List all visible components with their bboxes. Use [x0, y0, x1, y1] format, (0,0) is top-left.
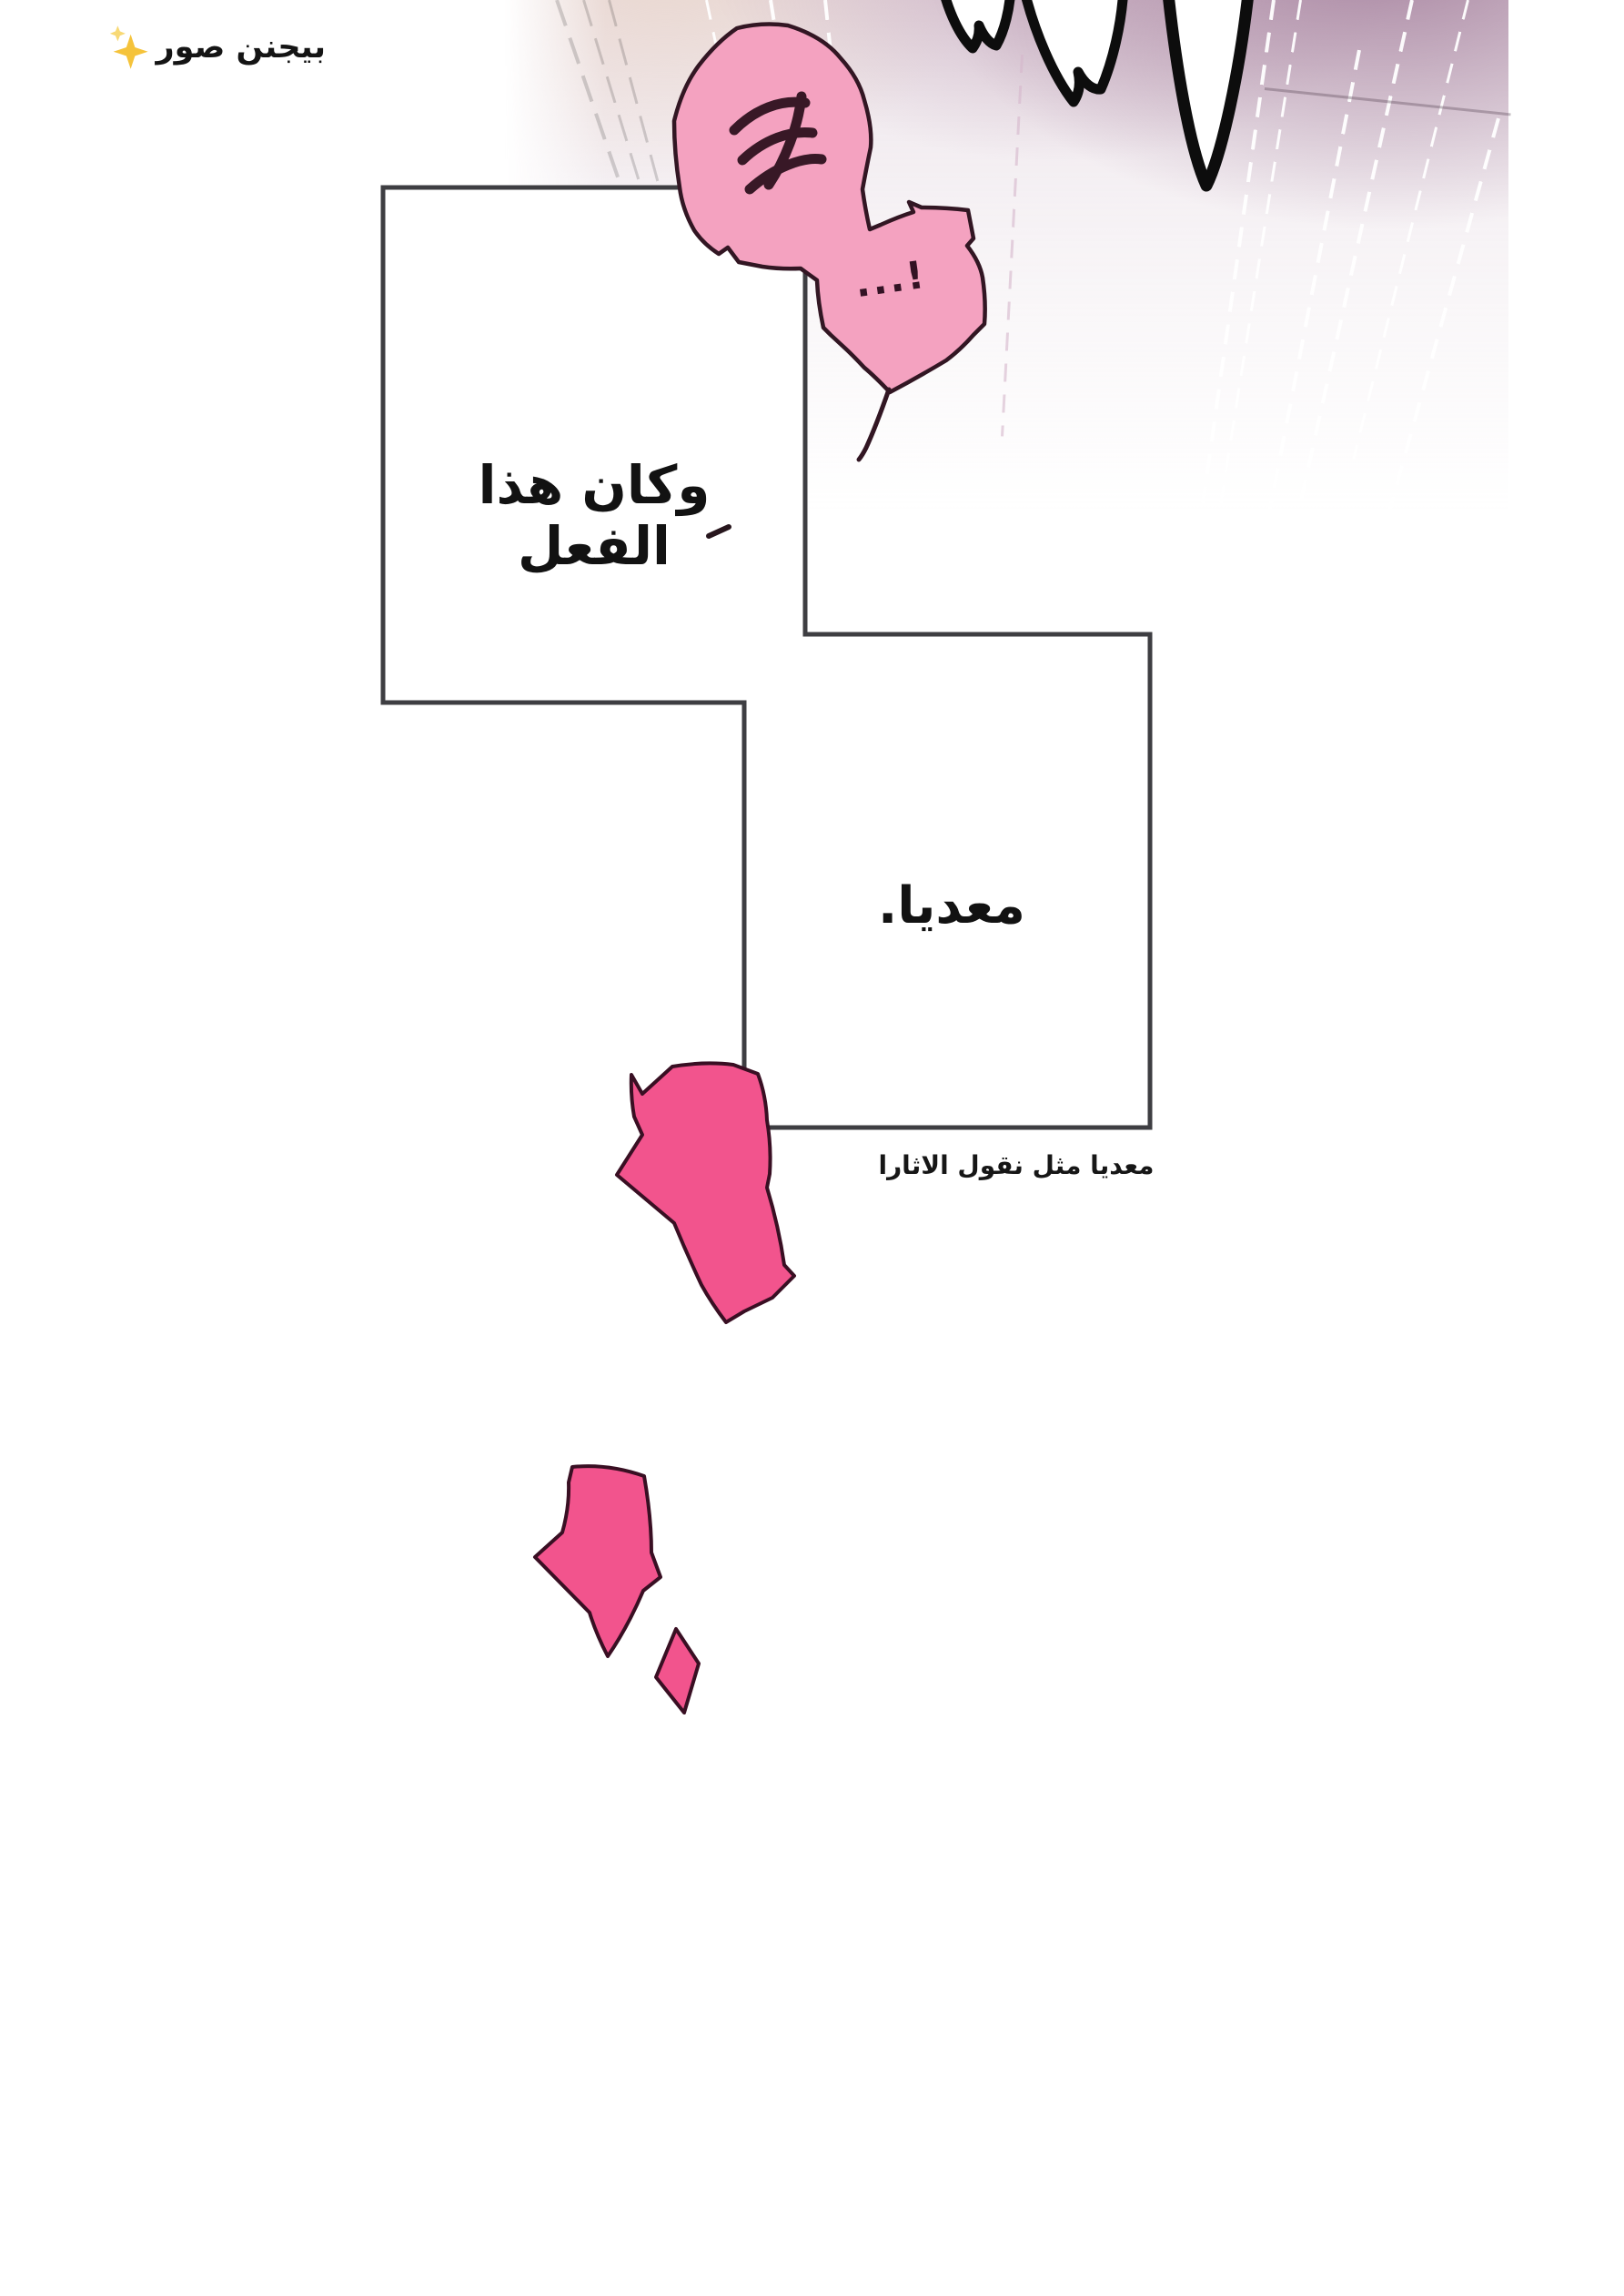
panel-a-dialogue: وكان هذا الفعل	[403, 455, 785, 542]
claw-fingers-icon	[943, 0, 1249, 186]
comic-art	[0, 0, 1624, 2296]
panel-b-dialogue: معديا.	[806, 877, 1097, 965]
ink-splatter-kite	[535, 1466, 661, 1656]
translator-note: معديا مثل نقول الاثارا	[871, 1150, 1162, 1196]
ink-splatters	[535, 1063, 794, 1713]
watermark-text: بيجنن صور	[156, 29, 326, 66]
claw-finger-small	[943, 0, 1011, 48]
comic-panels-outline	[383, 187, 1150, 1128]
claw-finger-medium	[1024, 0, 1124, 102]
claw-finger-long	[1167, 0, 1249, 186]
speech-bubble-tail	[859, 389, 889, 460]
watermark: بيجنن صور	[107, 20, 326, 75]
comic-page: بيجنن صور ...! وكان هذا الفعل معديا. معد…	[0, 0, 1624, 2296]
sparkles-icon	[107, 23, 150, 72]
ink-splatter-diamond	[656, 1629, 699, 1713]
